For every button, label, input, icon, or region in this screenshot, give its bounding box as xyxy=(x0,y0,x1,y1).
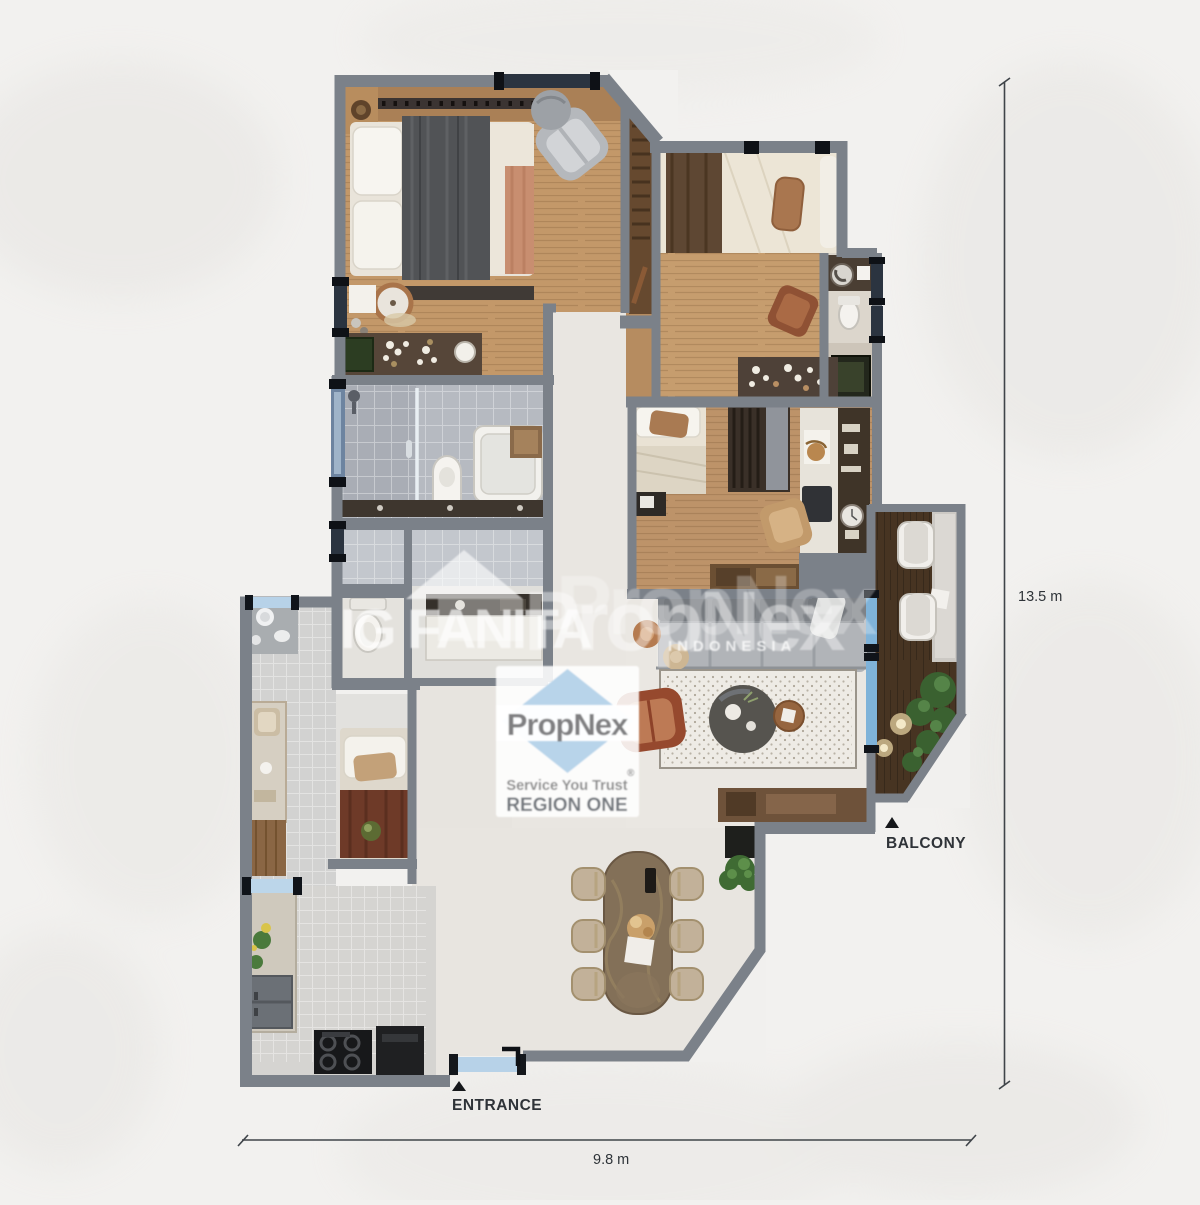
svg-text:13.5 m: 13.5 m xyxy=(1018,589,1062,605)
svg-text:INDONESIA: INDONESIA xyxy=(668,638,796,655)
svg-text:®: ® xyxy=(627,768,635,779)
svg-text:REGION ONE: REGION ONE xyxy=(506,795,627,816)
svg-text:BALCONY: BALCONY xyxy=(886,835,966,852)
svg-text:9.8 m: 9.8 m xyxy=(593,1152,629,1168)
svg-text:PropNex: PropNex xyxy=(507,707,629,742)
svg-text:ENTRANCE: ENTRANCE xyxy=(452,1097,542,1114)
svg-text:Service You Trust: Service You Trust xyxy=(506,778,627,794)
